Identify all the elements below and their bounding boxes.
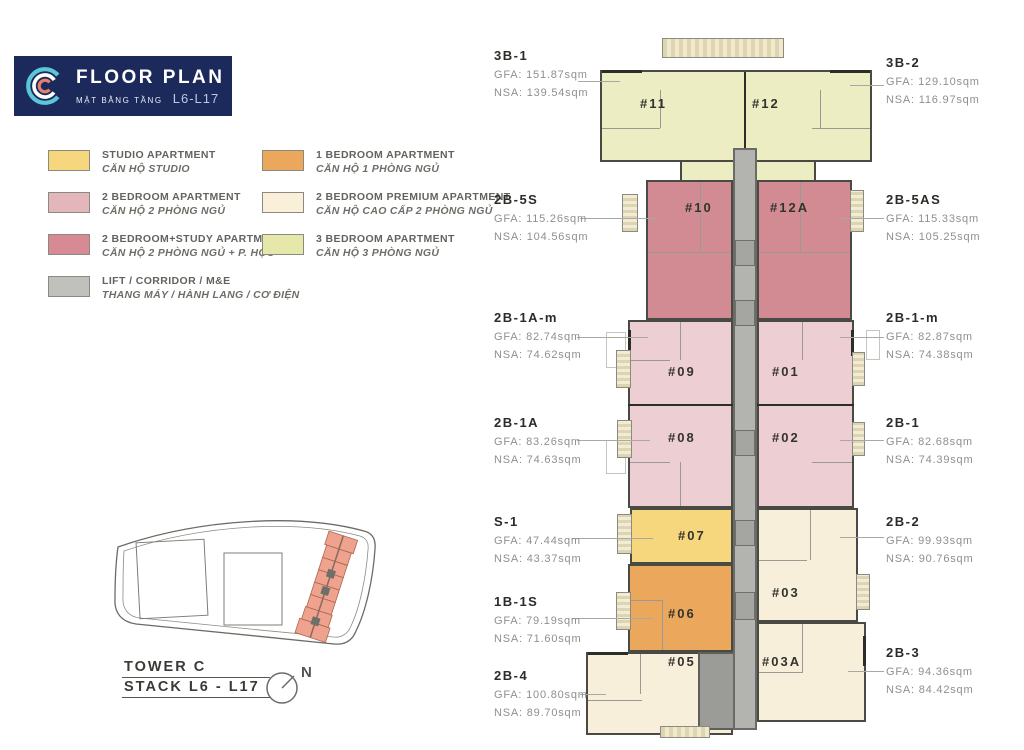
legend-label-vi: CĂN HỘ 2 PHÒNG NGỦ + P. HỌC [102,246,285,260]
unit-type-code: 2B-4 [494,668,588,683]
ac-ledge [866,330,880,360]
north-label: N [301,664,313,681]
nsa-value: NSA: 89.70sqm [494,704,588,722]
legend-item-2-bedroom-premium: 2 BEDROOM PREMIUM APARTMENT CĂN HỘ CAO C… [262,192,511,218]
site-caption: TOWER C STACK L6 - L17 [122,658,270,698]
unit-label-12: #12 [752,96,780,111]
annotation-2b-1: 2B-1 GFA: 82.68sqm NSA: 74.39sqm [886,415,973,469]
legend-label: LIFT / CORRIDOR / M&E [102,274,300,288]
tower-c-highlighted-stack [295,531,358,643]
leader-line [572,538,653,539]
legend-label: 2 BEDROOM+STUDY APARTMENT [102,232,285,246]
wall-line [820,90,821,128]
nsa-value: NSA: 84.42sqm [886,681,973,699]
balcony [662,38,784,58]
gfa-value: GFA: 47.44sqm [494,532,581,550]
legend-swatch-2-bedroom-premium [262,192,304,213]
annotation-2b-1-m: 2B-1-m GFA: 82.87sqm NSA: 74.38sqm [886,310,973,364]
unit-label-05: #05 [668,654,696,669]
unit-label-12a: #12A [770,200,809,215]
wall-line [700,182,701,252]
legend-label-vi: THANG MÁY / HÀNH LANG / CƠ ĐIỆN [102,288,300,302]
nsa-value: NSA: 74.63sqm [494,451,581,469]
annotation-2b-2: 2B-2 GFA: 99.93sqm NSA: 90.76sqm [886,514,973,568]
legend-label-vi: CĂN HỘ CAO CẤP 2 PHÒNG NGỦ [316,204,511,218]
annotation-s-1: S-1 GFA: 47.44sqm NSA: 43.37sqm [494,514,581,568]
unit-label-01: #01 [772,364,800,379]
legend-item-3-bedroom: 3 BEDROOM APARTMENT CĂN HỘ 3 PHÒNG NGỦ [262,234,455,260]
nsa-value: NSA: 90.76sqm [886,550,973,568]
unit-label-06: #06 [668,606,696,621]
wall-line [812,128,870,129]
legend-label: 2 BEDROOM PREMIUM APARTMENT [316,190,511,204]
floor-plan-page: FLOOR PLAN MẶT BẰNG TẦNG L6-L17 STUDIO A… [0,0,1024,750]
unit-label-10: #10 [685,200,713,215]
wall-line [662,600,663,650]
unit-type-code: 2B-1A [494,415,581,430]
unit-block-03 [757,508,858,622]
page-subtitle-vi: MẶT BẰNG TẦNG [76,96,163,105]
unit-label-09: #09 [668,364,696,379]
wall-line [800,182,801,252]
unit-block-01-02 [757,320,854,508]
unit-label-07: #07 [678,528,706,543]
nsa-value: NSA: 104.56sqm [494,228,588,246]
wall-line [759,672,803,673]
nsa-value: NSA: 139.54sqm [494,84,588,102]
balcony [616,592,631,630]
annotation-2b-1a: 2B-1A GFA: 83.26sqm NSA: 74.63sqm [494,415,581,469]
wall-line [810,510,811,560]
gfa-value: GFA: 94.36sqm [886,663,973,681]
wall-line [757,404,854,406]
legend-swatch-3-bedroom [262,234,304,255]
unit-label-08: #08 [668,430,696,445]
unit-type-code: 3B-2 [886,55,980,70]
legend-label: 1 BEDROOM APARTMENT [316,148,455,162]
leader-line [840,218,884,219]
wall-line [602,128,660,129]
stack-label: STACK L6 - L17 [122,678,270,698]
legend-item-lift-corridor: LIFT / CORRIDOR / M&E THANG MÁY / HÀNH L… [48,276,300,302]
header-subtitle-row: MẶT BẰNG TẦNG L6-L17 [76,91,225,106]
gfa-value: GFA: 83.26sqm [494,433,581,451]
tower-b-footprint [224,553,282,625]
level-range-label: L6-L17 [173,91,219,106]
wall-line [744,72,746,148]
gfa-value: GFA: 82.68sqm [886,433,973,451]
balcony [850,190,864,232]
wall-line [812,462,852,463]
unit-type-code: S-1 [494,514,581,529]
nsa-value: NSA: 74.62sqm [494,346,581,364]
leader-line [572,618,653,619]
gfa-value: GFA: 82.87sqm [886,328,973,346]
legend-item-2-bedroom: 2 BEDROOM APARTMENT CĂN HỘ 2 PHÒNG NGỦ [48,192,241,218]
legend-label-vi: CĂN HỘ 1 PHÒNG NGỦ [316,162,455,176]
wall-line [602,70,642,73]
wall-line [680,462,681,506]
balcony [622,194,638,232]
annotation-2b-3: 2B-3 GFA: 94.36sqm NSA: 84.42sqm [886,645,973,699]
leader-line [577,337,648,338]
legend-label: 3 BEDROOM APARTMENT [316,232,455,246]
balcony [852,422,865,456]
balcony [617,420,632,458]
wall-line [630,462,670,463]
leader-line [848,671,884,672]
nsa-value: NSA: 116.97sqm [886,91,980,109]
gfa-value: GFA: 151.87sqm [494,66,588,84]
wall-line [759,560,807,561]
legend-swatch-2-bedroom [48,192,90,213]
nsa-value: NSA: 74.38sqm [886,346,973,364]
unit-type-code: 2B-5AS [886,192,980,207]
wall-line [630,600,662,601]
gfa-value: GFA: 79.19sqm [494,612,581,630]
nsa-value: NSA: 105.25sqm [886,228,980,246]
nsa-value: NSA: 43.37sqm [494,550,581,568]
legend-swatch-1-bedroom [262,150,304,171]
annotation-2b-5as: 2B-5AS GFA: 115.33sqm NSA: 105.25sqm [886,192,980,246]
balcony [660,726,710,738]
wall-line [628,404,733,406]
leader-line [850,85,884,86]
gfa-value: GFA: 100.80sqm [494,686,588,704]
gfa-value: GFA: 99.93sqm [886,532,973,550]
gfa-value: GFA: 115.33sqm [886,210,980,228]
wall-line [802,624,803,672]
brand-c-logo-icon [24,65,66,107]
leader-line [577,440,650,441]
unit-type-code: 1B-1S [494,594,581,609]
balcony [852,352,865,386]
lift-shaft [735,300,755,326]
wall-line [830,70,870,73]
wall-line [630,360,670,361]
annotation-1b-1s: 1B-1S GFA: 79.19sqm NSA: 71.60sqm [494,594,581,648]
nsa-value: NSA: 74.39sqm [886,451,973,469]
balcony [616,350,631,388]
wall-line [759,252,850,253]
annotation-2b-4: 2B-4 GFA: 100.80sqm NSA: 89.70sqm [494,668,588,722]
compass-icon [262,664,306,708]
legend-item-studio: STUDIO APARTMENT CĂN HỘ STUDIO [48,150,216,176]
header-banner: FLOOR PLAN MẶT BẰNG TẦNG L6-L17 [14,56,232,116]
wall-line [680,322,681,360]
leader-line [840,440,884,441]
legend-label-vi: CĂN HỘ 2 PHÒNG NGỦ [102,204,241,218]
legend-label-vi: CĂN HỘ 3 PHÒNG NGỦ [316,246,455,260]
unit-label-11: #11 [640,96,667,111]
wall-line [588,700,642,701]
legend-label: 2 BEDROOM APARTMENT [102,190,241,204]
unit-type-code: 2B-1A-m [494,310,581,325]
balcony [856,574,870,610]
legend-label: STUDIO APARTMENT [102,148,216,162]
unit-label-03a: #03A [762,654,801,669]
unit-type-code: 2B-5S [494,192,588,207]
lift-shaft [735,240,755,266]
wall-line [588,652,628,655]
wall-line [648,252,731,253]
unit-label-03: #03 [772,585,800,600]
site-key-plan [88,505,390,663]
legend-swatch-2-bedroom-study [48,234,90,255]
header-text: FLOOR PLAN MẶT BẰNG TẦNG L6-L17 [76,67,225,106]
wall-line [863,636,866,666]
legend-swatch-studio [48,150,90,171]
tower-a-footprint [136,539,208,618]
page-title: FLOOR PLAN [76,67,225,89]
leader-line [840,537,884,538]
legend-item-2-bedroom-study: 2 BEDROOM+STUDY APARTMENT CĂN HỘ 2 PHÒNG… [48,234,285,260]
leader-line [840,337,884,338]
unit-type-code: 2B-3 [886,645,973,660]
gfa-value: GFA: 115.26sqm [494,210,588,228]
lift-shaft [735,520,755,546]
unit-type-code: 3B-1 [494,48,588,63]
unit-type-code: 2B-1-m [886,310,973,325]
tower-label: TOWER C [122,658,270,678]
gfa-value: GFA: 82.74sqm [494,328,581,346]
unit-label-02: #02 [772,430,800,445]
annotation-2b-5s: 2B-5S GFA: 115.26sqm NSA: 104.56sqm [494,192,588,246]
wall-line [640,654,641,694]
annotation-3b-2: 3B-2 GFA: 129.10sqm NSA: 116.97sqm [886,55,980,109]
legend-swatch-lift-corridor [48,276,90,297]
unit-type-code: 2B-1 [886,415,973,430]
legend-item-1-bedroom: 1 BEDROOM APARTMENT CĂN HỘ 1 PHÒNG NGỦ [262,150,455,176]
leader-line [580,218,658,219]
lift-shaft [735,430,755,456]
unit-type-code: 2B-2 [886,514,973,529]
gfa-value: GFA: 129.10sqm [886,73,980,91]
lift-shaft [735,592,755,620]
annotation-2b-1a-m: 2B-1A-m GFA: 82.74sqm NSA: 74.62sqm [494,310,581,364]
wall-line [802,322,803,360]
legend-label-vi: CĂN HỘ STUDIO [102,162,216,176]
balcony [617,514,632,554]
annotation-3b-1: 3B-1 GFA: 151.87sqm NSA: 139.54sqm [494,48,588,102]
nsa-value: NSA: 71.60sqm [494,630,581,648]
